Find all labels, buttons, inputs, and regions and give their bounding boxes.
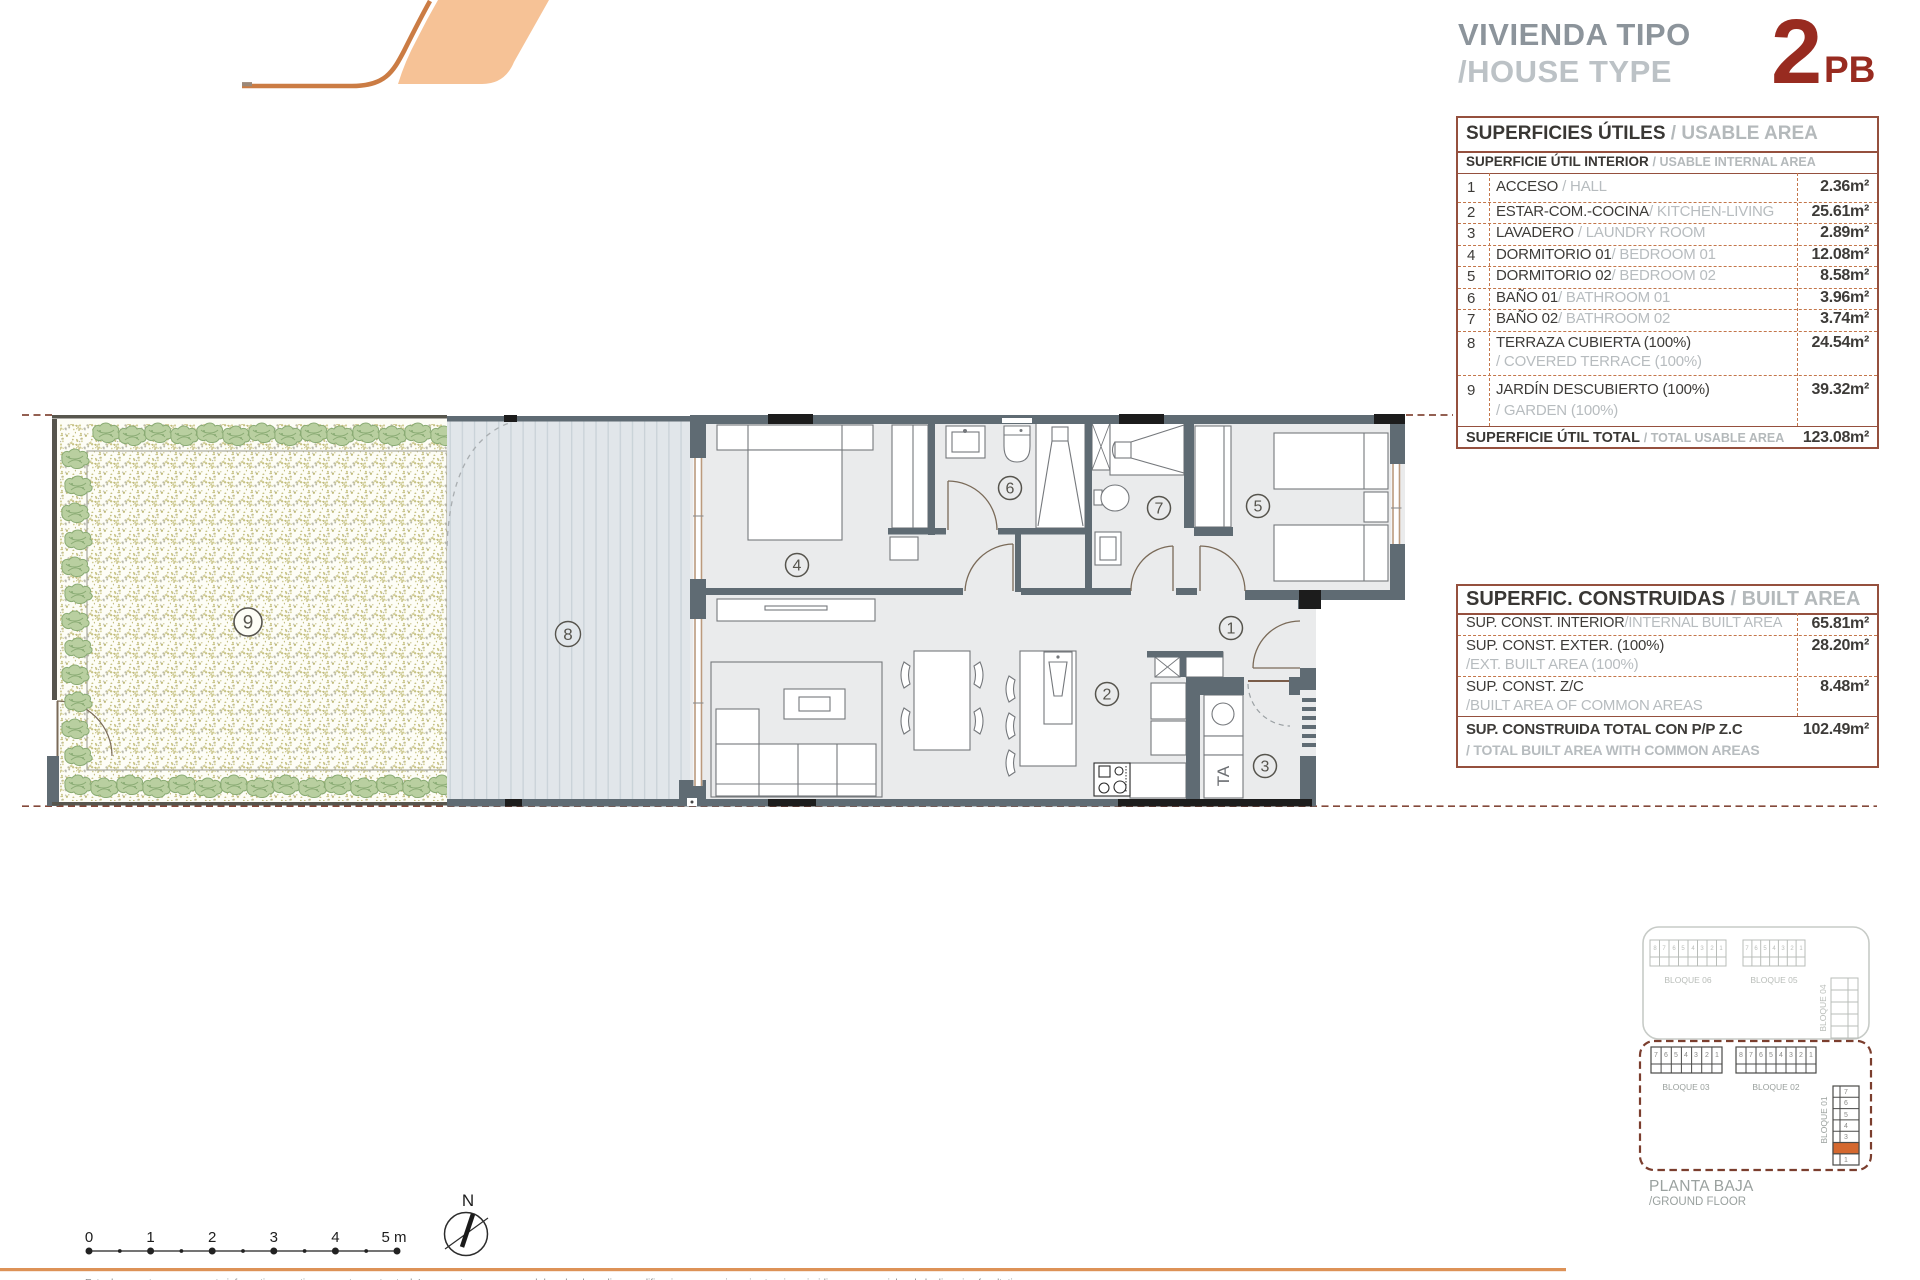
svg-text:5: 5 xyxy=(1763,946,1767,952)
svg-text:BLOQUE 04: BLOQUE 04 xyxy=(1818,984,1828,1032)
svg-text:4: 4 xyxy=(1684,1052,1688,1059)
svg-text:3: 3 xyxy=(1694,1052,1698,1059)
svg-text:6: 6 xyxy=(1844,1100,1848,1107)
svg-text:5: 5 xyxy=(1674,1052,1678,1059)
svg-text:4: 4 xyxy=(1691,946,1695,952)
svg-text:1: 1 xyxy=(1809,1052,1813,1059)
svg-text:BLOQUE 03: BLOQUE 03 xyxy=(1662,1082,1710,1092)
svg-text:6: 6 xyxy=(1759,1052,1763,1059)
svg-text:8: 8 xyxy=(563,625,572,644)
svg-text:3: 3 xyxy=(1781,946,1785,952)
svg-text:4: 4 xyxy=(1779,1052,1783,1059)
svg-text:6: 6 xyxy=(1754,946,1758,952)
svg-text:4: 4 xyxy=(793,558,802,575)
svg-text:7: 7 xyxy=(1662,946,1666,952)
svg-text:0: 0 xyxy=(85,1229,93,1246)
svg-text:6: 6 xyxy=(1672,946,1676,952)
svg-text:2: 2 xyxy=(208,1229,216,1246)
svg-text:1: 1 xyxy=(1719,946,1723,952)
svg-text:7: 7 xyxy=(1155,501,1164,518)
svg-text:5 m: 5 m xyxy=(381,1229,406,1246)
svg-text:2: 2 xyxy=(1790,946,1794,952)
svg-text:N: N xyxy=(462,1191,474,1210)
svg-text:2: 2 xyxy=(1705,1052,1709,1059)
svg-text:3: 3 xyxy=(1789,1052,1793,1059)
svg-text:8: 8 xyxy=(1653,946,1657,952)
svg-text:4: 4 xyxy=(331,1229,339,1246)
svg-text:3: 3 xyxy=(1700,946,1704,952)
svg-text:7: 7 xyxy=(1749,1052,1753,1059)
svg-text:3: 3 xyxy=(1261,759,1270,776)
svg-text:5: 5 xyxy=(1769,1052,1773,1059)
svg-text:5: 5 xyxy=(1254,499,1263,516)
svg-text:6: 6 xyxy=(1664,1052,1668,1059)
svg-text:2: 2 xyxy=(1799,1052,1803,1059)
svg-text:5: 5 xyxy=(1844,1112,1848,1119)
svg-text:1: 1 xyxy=(1715,1052,1719,1059)
svg-text:1: 1 xyxy=(1844,1157,1848,1164)
svg-text:/GROUND FLOOR: /GROUND FLOOR xyxy=(1649,1196,1746,1208)
svg-text:BLOQUE 06: BLOQUE 06 xyxy=(1664,975,1712,985)
svg-text:TA: TA xyxy=(1214,765,1233,786)
svg-text:7: 7 xyxy=(1844,1089,1848,1096)
svg-text:BLOQUE 02: BLOQUE 02 xyxy=(1752,1082,1800,1092)
svg-text:9: 9 xyxy=(243,613,254,634)
svg-text:BLOQUE 01: BLOQUE 01 xyxy=(1819,1096,1829,1144)
svg-text:3: 3 xyxy=(270,1229,278,1246)
svg-text:3: 3 xyxy=(1844,1134,1848,1141)
svg-text:1: 1 xyxy=(146,1229,154,1246)
svg-text:7: 7 xyxy=(1654,1052,1658,1059)
svg-text:6: 6 xyxy=(1006,481,1015,498)
svg-text:5: 5 xyxy=(1681,946,1685,952)
svg-text:1: 1 xyxy=(1799,946,1803,952)
svg-text:2: 2 xyxy=(1710,946,1714,952)
svg-text:8: 8 xyxy=(1739,1052,1743,1059)
svg-text:7: 7 xyxy=(1745,946,1749,952)
svg-text:PLANTA BAJA: PLANTA BAJA xyxy=(1649,1178,1754,1195)
svg-text:1: 1 xyxy=(1227,621,1236,638)
svg-text:BLOQUE 05: BLOQUE 05 xyxy=(1750,975,1798,985)
svg-text:4: 4 xyxy=(1844,1123,1848,1130)
svg-text:4: 4 xyxy=(1772,946,1776,952)
svg-text:2: 2 xyxy=(1103,687,1112,704)
